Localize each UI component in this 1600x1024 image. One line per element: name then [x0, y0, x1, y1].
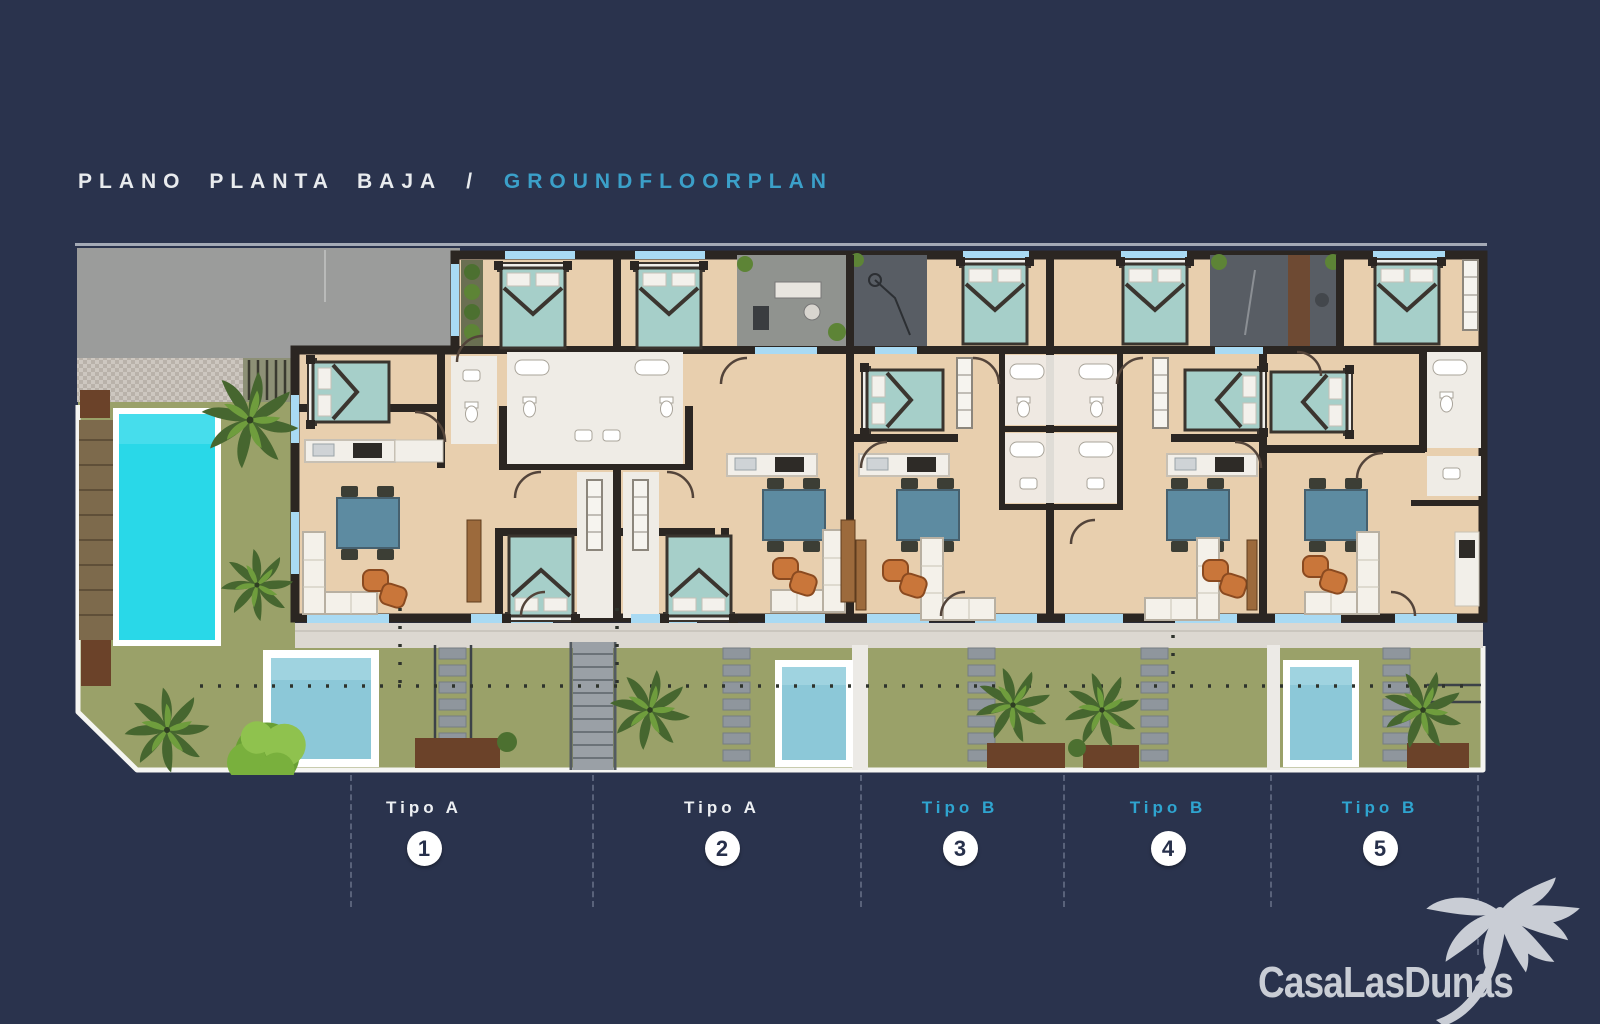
unit-type-label: Tipo B [900, 798, 1020, 818]
unit-type-label: Tipo A [364, 798, 484, 818]
shrub [497, 732, 517, 752]
unit-number-badge: 2 [705, 831, 740, 866]
floor-plan-svg [75, 240, 1495, 775]
stepping-path-4 [1141, 648, 1168, 761]
page-title: PLANO PLANTA BAJA / GROUNDFLOORPLAN [78, 170, 833, 194]
unit-label-1: Tipo A 1 [364, 798, 484, 866]
mulch-patch [81, 640, 111, 686]
unit-label-4: Tipo B 4 [1108, 798, 1228, 866]
brand-logo: CasaLasDunas [1240, 850, 1600, 1024]
unit-label-2: Tipo A 2 [662, 798, 782, 866]
terrace-band [295, 623, 1483, 648]
unit-number-badge: 1 [407, 831, 442, 866]
mulch-patch [80, 390, 110, 418]
stepping-path-2 [723, 648, 750, 761]
title-separator: / [466, 170, 479, 193]
mulch-patch [987, 743, 1065, 768]
title-english: GROUNDFLOORPLAN [504, 170, 833, 193]
mulch-patch [1407, 743, 1469, 768]
page: PLANO PLANTA BAJA / GROUNDFLOORPLAN [0, 0, 1600, 1024]
mulch-patch [415, 738, 500, 768]
walkway [852, 645, 868, 770]
driveway-unit3 [850, 253, 927, 350]
unit-type-label: Tipo B [1320, 798, 1440, 818]
unit-number-badge: 3 [943, 831, 978, 866]
driveway [77, 248, 460, 358]
stairs-central [571, 642, 615, 770]
unit-type-label: Tipo B [1108, 798, 1228, 818]
wood-deck [79, 420, 113, 640]
label-divider [1063, 775, 1065, 907]
planter [461, 260, 483, 346]
unit-number-badge: 4 [1151, 831, 1186, 866]
plunge-pool-5 [1283, 660, 1359, 767]
label-divider [592, 775, 594, 907]
floor-plan [75, 240, 1495, 775]
brand-name: CasaLasDunas [1258, 958, 1513, 1008]
unit-type-label: Tipo A [662, 798, 782, 818]
label-divider [860, 775, 862, 907]
walkway [1267, 645, 1280, 770]
driveway-unit4-5 [1210, 254, 1341, 350]
unit-label-3: Tipo B 3 [900, 798, 1020, 866]
site-boundary-line [75, 243, 1487, 246]
patio-unit2 [737, 255, 850, 350]
mulch-patch [1083, 745, 1139, 768]
communal-pool [113, 408, 221, 646]
shrub [1068, 739, 1086, 757]
label-divider [350, 775, 352, 907]
building [291, 251, 1483, 623]
plunge-pool-2 [775, 660, 853, 767]
title-spanish: PLANO PLANTA BAJA [78, 170, 441, 193]
